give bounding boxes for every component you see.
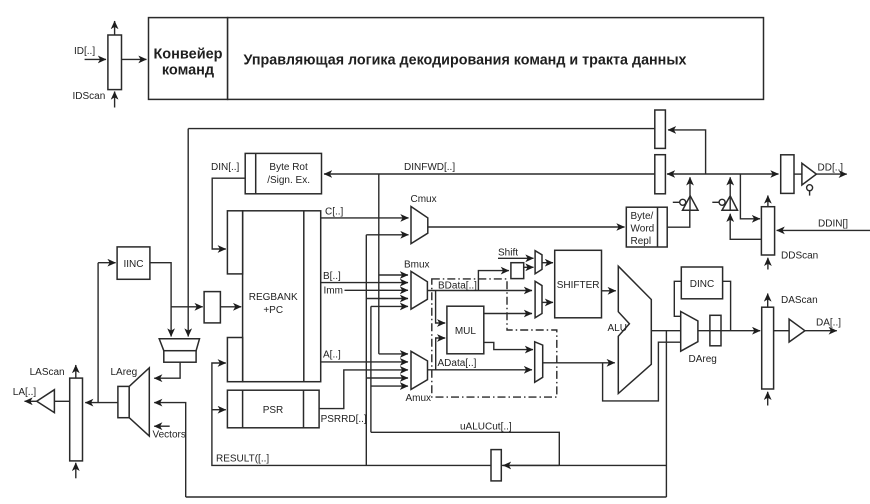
svg-text:Bmux: Bmux <box>404 260 430 271</box>
svg-text:C[..]: C[..] <box>325 207 344 218</box>
svg-text:Word: Word <box>631 224 655 235</box>
svg-text:DAreg: DAreg <box>689 354 717 365</box>
svg-text:A[..]: A[..] <box>323 350 341 361</box>
svg-text:ALU: ALU <box>608 323 627 334</box>
svg-text:Vectors: Vectors <box>153 430 186 441</box>
svg-text:Repl: Repl <box>631 236 652 247</box>
svg-text:Amux: Amux <box>406 393 432 404</box>
svg-text:BData[..]: BData[..] <box>438 280 477 291</box>
svg-text:PSRRD[..]: PSRRD[..] <box>321 414 367 425</box>
svg-text:B[..]: B[..] <box>323 271 341 282</box>
svg-text:Управляющая логика декодирован: Управляющая логика декодирования команд … <box>244 52 688 69</box>
svg-text:DINC: DINC <box>690 279 714 290</box>
svg-text:DDScan: DDScan <box>781 251 818 262</box>
svg-text:Конвейер: Конвейер <box>153 47 222 63</box>
svg-text:команд: команд <box>162 63 214 79</box>
svg-text:Cmux: Cmux <box>411 194 437 205</box>
svg-text:Byte/: Byte/ <box>631 211 654 222</box>
svg-text:DD[..]: DD[..] <box>818 163 844 174</box>
svg-text:AData[..]: AData[..] <box>438 358 477 369</box>
svg-text:SHIFTER: SHIFTER <box>557 280 600 291</box>
svg-text:IINC: IINC <box>124 259 144 270</box>
svg-text:DAScan: DAScan <box>781 295 818 306</box>
svg-text:IDScan: IDScan <box>73 91 106 102</box>
svg-text:DIN[..]: DIN[..] <box>211 162 240 173</box>
svg-text:DA[..]: DA[..] <box>816 318 841 329</box>
svg-text:REGBANK: REGBANK <box>249 292 298 303</box>
svg-text:PSR: PSR <box>263 405 284 416</box>
svg-text:MUL: MUL <box>455 326 477 337</box>
svg-text:+PC: +PC <box>263 305 283 316</box>
svg-text:DINFWD[..]: DINFWD[..] <box>404 162 455 173</box>
svg-text:LA[..]: LA[..] <box>13 387 37 398</box>
svg-text:/Sign. Ex.: /Sign. Ex. <box>267 175 310 186</box>
svg-text:LAScan: LAScan <box>30 367 65 378</box>
svg-text:uALUCut[..]: uALUCut[..] <box>460 422 512 433</box>
svg-text:ID[..]: ID[..] <box>74 46 95 57</box>
svg-text:DDIN[]: DDIN[] <box>818 219 848 230</box>
svg-text:Shift: Shift <box>498 248 518 259</box>
svg-text:LAreg: LAreg <box>111 367 138 378</box>
svg-text:Imm: Imm <box>324 286 343 297</box>
svg-text:Byte Rot: Byte Rot <box>269 162 308 173</box>
svg-text:RESULT([..]: RESULT([..] <box>216 454 269 465</box>
